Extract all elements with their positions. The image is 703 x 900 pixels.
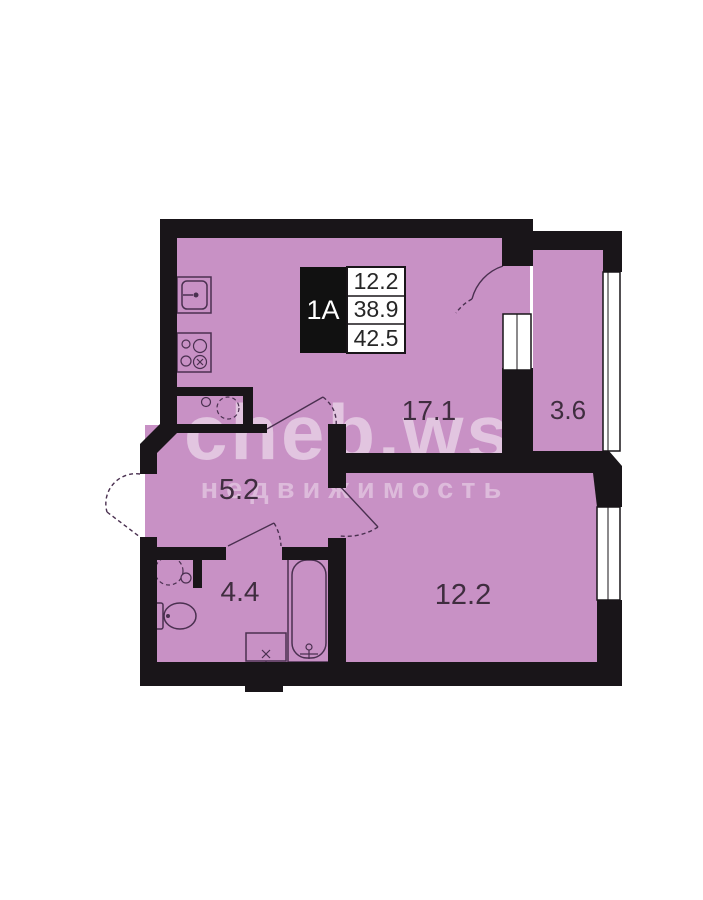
floor-plan-page: cheb.ws недвижимость [0,0,703,900]
balcony-window [603,272,620,451]
wall-balcony-bottom [533,451,595,473]
wall-hall-bedroom-pier [328,424,346,473]
unit-label: 1A [306,295,339,325]
label-bathroom: 4.4 [221,576,260,607]
info-value-living: 38.9 [354,296,399,322]
wall-bathroom-top-left [157,547,226,560]
wall-bathroom-top-right [282,547,346,560]
wall-left-upper [160,219,177,433]
info-value-room: 12.2 [354,268,399,294]
wall-niche-top [177,387,250,396]
info-value-total: 42.5 [354,325,399,351]
label-balcony: 3.6 [550,395,586,425]
unit-info-block: 1A 12.2 38.9 42.5 [300,267,405,353]
wall-balcony-left-top [502,238,533,266]
balcony-block-window [503,314,531,370]
wall-top-main [160,219,533,238]
wall-washbasin-stub [193,560,202,588]
wall-hall-left-top [140,451,157,474]
wall-bedroom-left-upper [328,473,346,488]
label-hallway: 5.2 [219,474,259,506]
wall-hall-top [177,424,267,433]
wall-bottom [140,662,622,686]
floor-plan: cheb.ws недвижимость [0,0,703,900]
wall-bottom-bump [245,686,283,692]
wall-bedroom-right-pier [597,600,622,662]
entrance-door-arc [106,474,140,537]
wall-balcony-chamfer [593,451,622,507]
label-living-kitchen: 17.1 [402,395,457,426]
wall-balcony-left-bottom [502,368,533,453]
wall-balcony-right-pier-top [603,250,622,272]
label-bedroom: 12.2 [435,579,491,611]
bedroom-window [597,507,620,600]
